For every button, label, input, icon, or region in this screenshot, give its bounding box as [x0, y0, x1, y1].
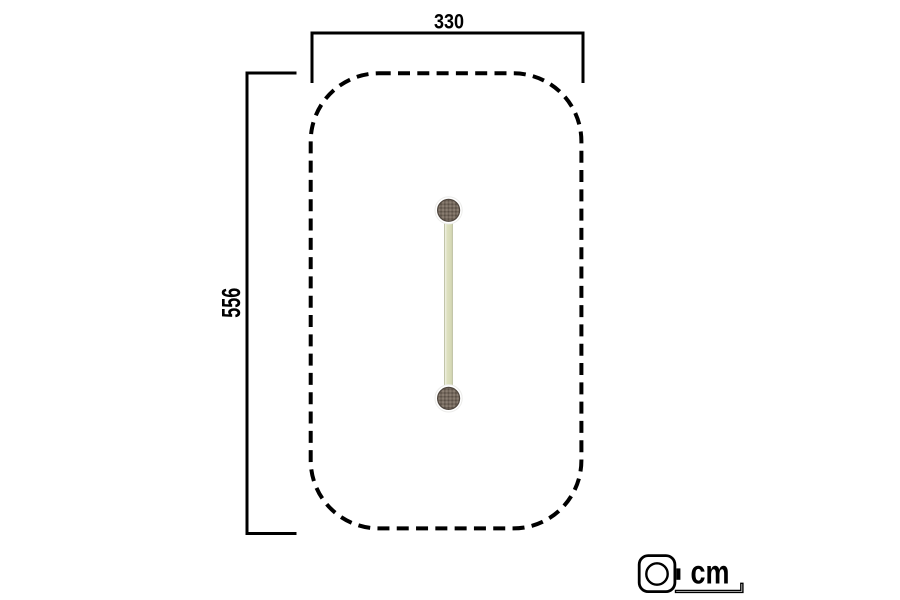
svg-text:cm: cm: [691, 553, 730, 590]
svg-text:556: 556: [216, 288, 246, 318]
svg-text:330: 330: [434, 10, 464, 34]
